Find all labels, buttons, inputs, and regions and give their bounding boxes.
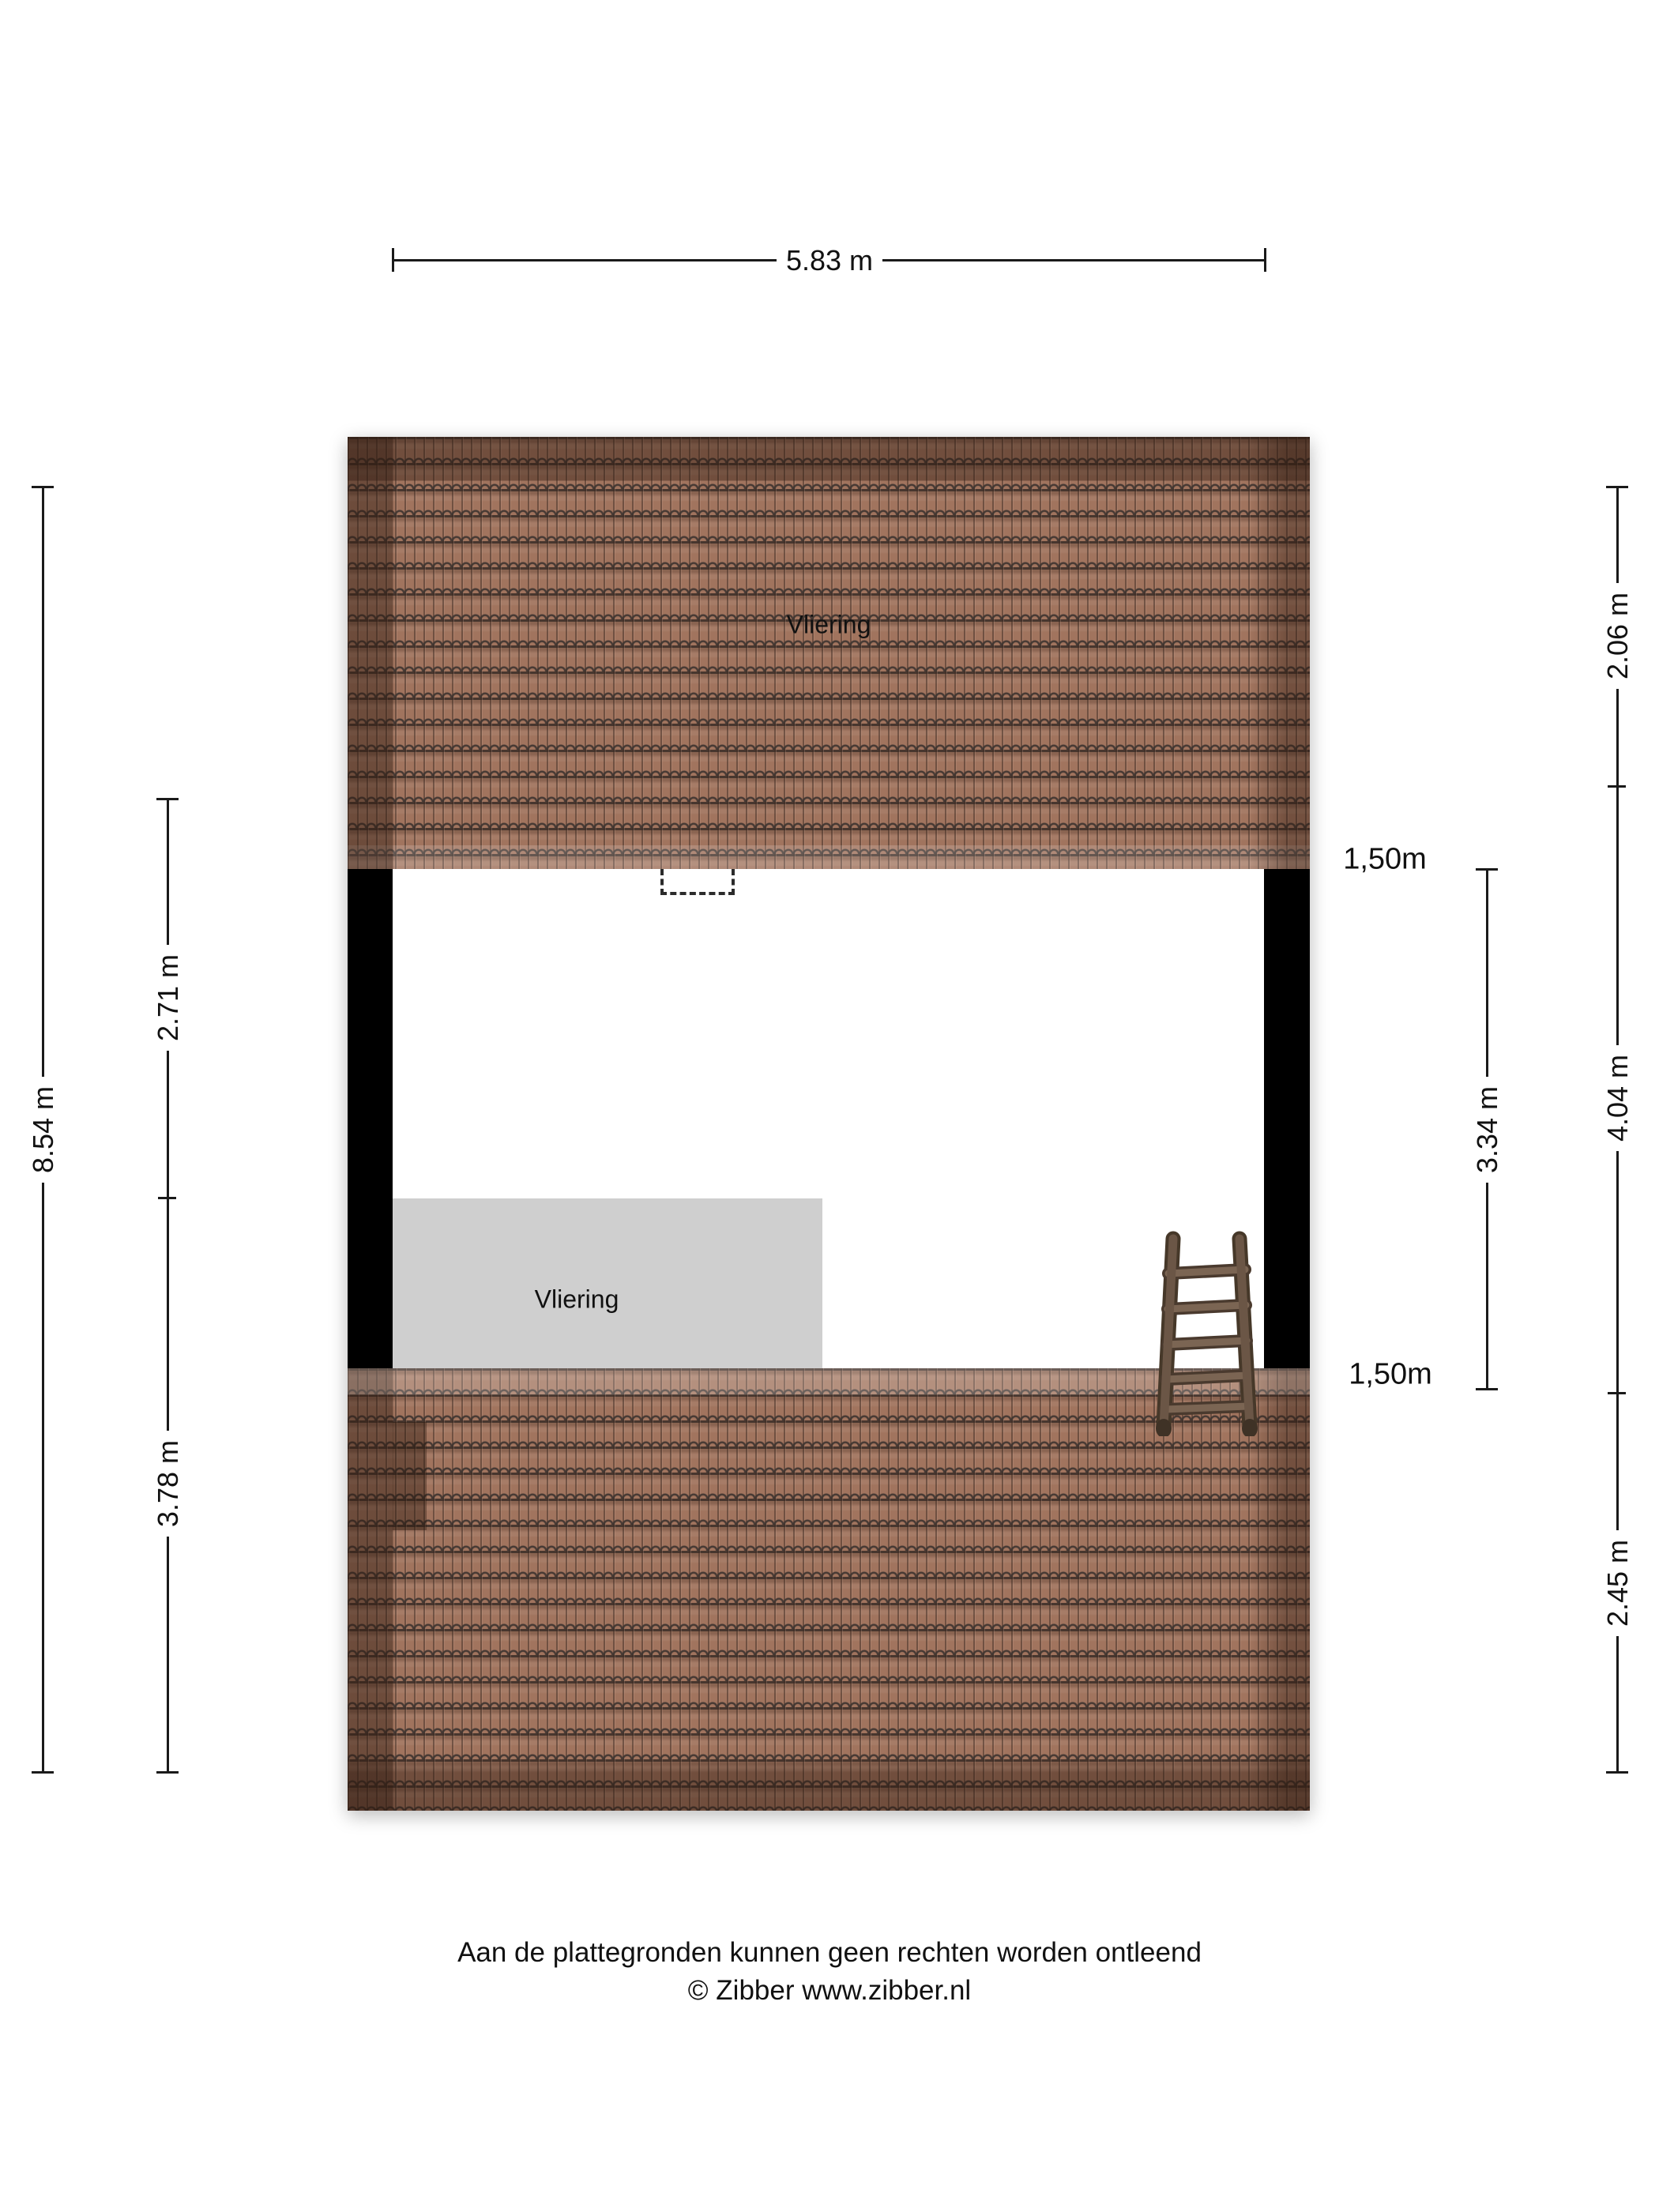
mezzanine-area [393, 1198, 822, 1368]
dimension-label-right-middle: 4.04 m [1601, 1045, 1635, 1151]
dimension-label-top-width: 5.83 m [777, 243, 882, 278]
wall-right [1264, 869, 1310, 1368]
roof-tiles-top [348, 437, 1310, 869]
ladder-icon [1155, 1229, 1258, 1436]
wall-left [348, 869, 393, 1368]
chimney-shadow [393, 1422, 427, 1530]
dimension-label-right-top: 2.06 m [1601, 583, 1635, 689]
dimension-label-right-inner: 3.34 m [1470, 1077, 1505, 1183]
footer-disclaimer: Aan de plattegronden kunnen geen rechten… [0, 1937, 1659, 1969]
knee-wall-height-label-top: 1,50m [1343, 843, 1427, 877]
room-label-attic: Vliering [787, 611, 871, 640]
dimension-label-left-upper: 2.71 m [151, 945, 186, 1051]
dimension-tick-left-middle [158, 1197, 176, 1199]
dimension-tick-right-lower [1608, 1392, 1626, 1394]
dimension-label-left-lower: 3.78 m [151, 1431, 186, 1537]
dimension-tick-right-upper [1608, 785, 1626, 788]
dimension-label-left-total: 8.54 m [26, 1077, 61, 1183]
knee-wall-height-label-bottom: 1,50m [1349, 1358, 1432, 1392]
room-label-mezzanine: Vliering [535, 1285, 619, 1315]
floorplan: Vliering Vliering [348, 437, 1310, 1811]
dimension-label-right-bottom: 2.45 m [1601, 1530, 1635, 1636]
roof-opening-dashed [660, 869, 735, 895]
footer-copyright: © Zibber www.zibber.nl [0, 1975, 1659, 2007]
